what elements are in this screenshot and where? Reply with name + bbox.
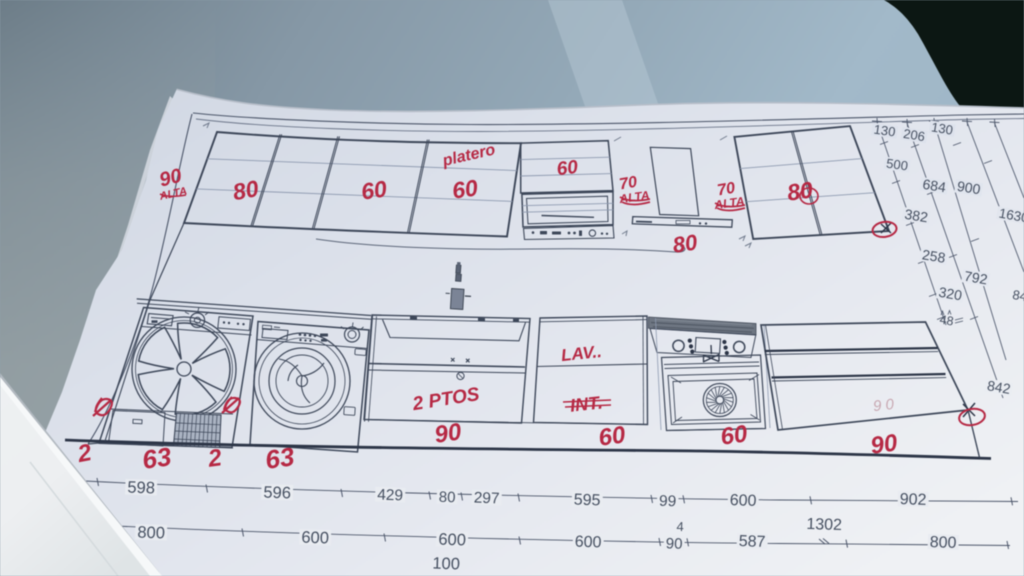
svg-text:60: 60 bbox=[597, 421, 628, 452]
svg-text:90: 90 bbox=[666, 535, 683, 553]
svg-text:600: 600 bbox=[730, 492, 757, 510]
svg-text:90: 90 bbox=[869, 429, 900, 460]
svg-text:500: 500 bbox=[885, 156, 909, 174]
svg-text:60: 60 bbox=[450, 174, 479, 203]
svg-text:84: 84 bbox=[1011, 287, 1024, 304]
svg-text:9 0: 9 0 bbox=[872, 396, 895, 415]
svg-text:INT.: INT. bbox=[569, 392, 604, 415]
svg-text:80: 80 bbox=[671, 229, 699, 257]
svg-text:90: 90 bbox=[433, 418, 464, 449]
svg-text:1302: 1302 bbox=[806, 516, 842, 534]
svg-text:63: 63 bbox=[140, 441, 173, 475]
svg-text:600: 600 bbox=[575, 534, 602, 552]
svg-text:598: 598 bbox=[127, 479, 155, 498]
svg-text:800: 800 bbox=[137, 524, 165, 543]
svg-text:4: 4 bbox=[676, 519, 684, 534]
svg-text:60: 60 bbox=[556, 157, 580, 180]
svg-text:587: 587 bbox=[739, 533, 766, 551]
svg-text:99: 99 bbox=[659, 493, 677, 511]
svg-text:902: 902 bbox=[900, 491, 927, 509]
svg-text:596: 596 bbox=[263, 484, 291, 503]
svg-text:600: 600 bbox=[301, 529, 329, 548]
svg-text:800: 800 bbox=[930, 534, 957, 552]
svg-text:60: 60 bbox=[719, 420, 750, 451]
svg-text:429: 429 bbox=[377, 487, 403, 505]
svg-text:100: 100 bbox=[432, 555, 460, 574]
svg-text:600: 600 bbox=[438, 531, 466, 550]
svg-text:80: 80 bbox=[785, 176, 814, 205]
svg-text:63: 63 bbox=[263, 441, 296, 475]
svg-text:130: 130 bbox=[873, 122, 897, 140]
svg-text:297: 297 bbox=[473, 490, 499, 508]
svg-text:595: 595 bbox=[574, 492, 601, 510]
svg-text:80: 80 bbox=[231, 175, 261, 205]
svg-text:80: 80 bbox=[439, 489, 456, 507]
svg-text:60: 60 bbox=[359, 175, 388, 204]
